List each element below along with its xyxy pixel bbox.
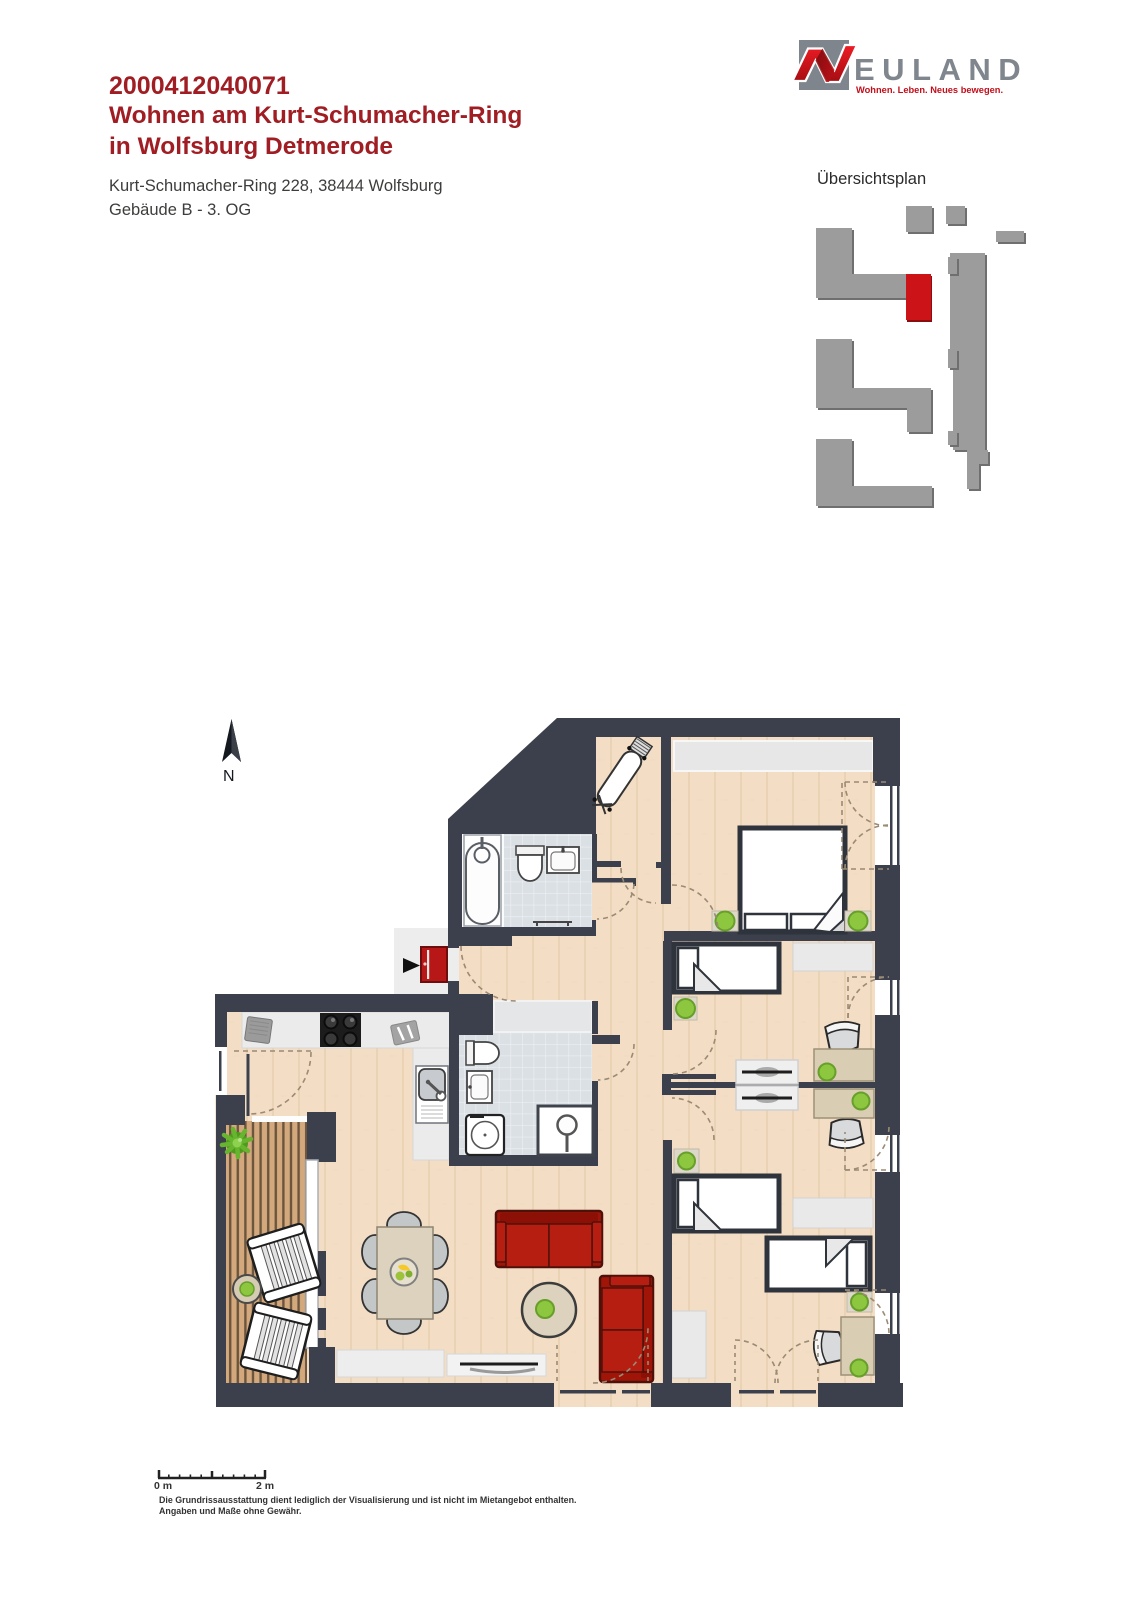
svg-text:Wohnen am Kurt-Schumacher-Ring: Wohnen am Kurt-Schumacher-Ring: [109, 102, 522, 129]
svg-text:Übersichtsplan: Übersichtsplan: [817, 170, 926, 188]
svg-text:2 m: 2 m: [256, 1480, 274, 1492]
svg-text:Gebäude B - 3. OG: Gebäude B - 3. OG: [109, 201, 251, 219]
svg-text:Wohnen. Leben. Neues bewegen.: Wohnen. Leben. Neues bewegen.: [856, 85, 1003, 95]
svg-text:2000412040071: 2000412040071: [109, 72, 290, 100]
svg-text:N: N: [223, 768, 235, 785]
svg-text:0 m: 0 m: [154, 1480, 172, 1492]
svg-text:EULAND: EULAND: [854, 52, 1028, 87]
svg-text:Die Grundrissausstattung dient: Die Grundrissausstattung dient lediglich…: [159, 1495, 577, 1505]
svg-text:in Wolfsburg Detmerode: in Wolfsburg Detmerode: [109, 133, 393, 160]
svg-text:Kurt-Schumacher-Ring 228, 3844: Kurt-Schumacher-Ring 228, 38444 Wolfsbur…: [109, 177, 443, 195]
svg-text:Angaben und Maße ohne Gewähr.: Angaben und Maße ohne Gewähr.: [159, 1506, 302, 1516]
